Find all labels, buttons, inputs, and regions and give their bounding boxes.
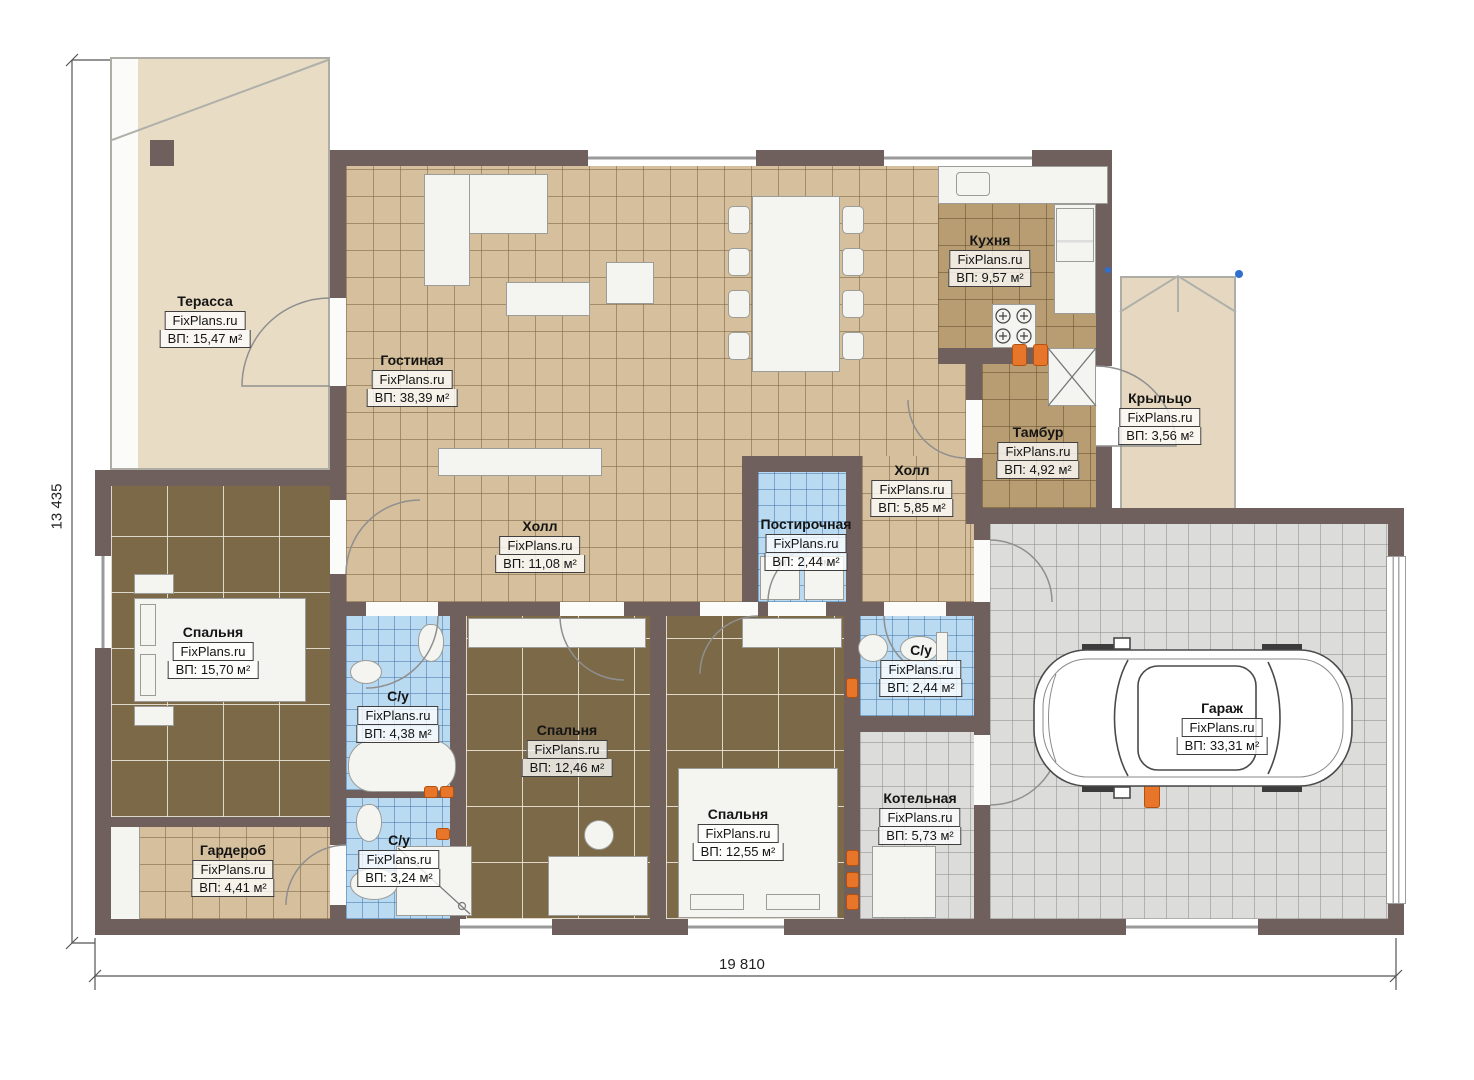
room-label-garage: Гараж FixPlans.ru ВП: 33,31 м² [1177, 700, 1268, 755]
brand-watermark: FixPlans.ru [1119, 408, 1200, 427]
desk-chair [584, 820, 614, 850]
bathroom3-door-gap [884, 602, 946, 616]
room-area: ВП: 33,31 м² [1177, 737, 1268, 755]
wardrobe-closet [111, 827, 140, 919]
radiator [846, 872, 859, 888]
coffee-table [506, 282, 590, 316]
room-area: ВП: 4,41 м² [191, 879, 274, 897]
room-label-bedroom1: Спальня FixPlans.ru ВП: 15,70 м² [168, 624, 259, 679]
dimension-height: 13 435 [48, 480, 65, 534]
room-label-bedroom2: Спальня FixPlans.ru ВП: 12,46 м² [522, 722, 613, 777]
terrace-floor [110, 57, 330, 470]
bed-pillow [140, 604, 156, 646]
window-top-1 [588, 150, 756, 166]
room-label-kitchen: Кухня FixPlans.ru ВП: 9,57 м² [948, 232, 1031, 287]
bedroom3-door-gap [700, 602, 758, 616]
room-label-porch: Крыльцо FixPlans.ru ВП: 3,56 м² [1118, 390, 1201, 445]
room-label-bedroom3: Спальня FixPlans.ru ВП: 12,55 м² [693, 806, 784, 861]
room-name: С/у [356, 688, 439, 704]
room-name: Спальня [693, 806, 784, 822]
terrace-edge [112, 59, 138, 468]
room-label-hall-small: Холл FixPlans.ru ВП: 5,85 м² [870, 462, 953, 517]
room-area: ВП: 11,08 м² [495, 555, 585, 573]
room-label-wardrobe: Гардероб FixPlans.ru ВП: 4,41 м² [191, 842, 274, 897]
radiator [1144, 782, 1160, 808]
room-area: ВП: 3,56 м² [1118, 427, 1201, 445]
room-name: Гараж [1177, 700, 1268, 716]
room-name: Спальня [168, 624, 259, 640]
bathroom1-door-gap [366, 602, 438, 616]
brand-watermark: FixPlans.ru [997, 442, 1078, 461]
room-name: Крыльцо [1118, 390, 1201, 406]
room-label-boiler: Котельная FixPlans.ru ВП: 5,73 м² [878, 790, 961, 845]
room-area: ВП: 38,39 м² [367, 389, 458, 407]
room-name: С/у [357, 832, 440, 848]
wall-bath3-boiler [844, 716, 974, 732]
chair [842, 248, 864, 276]
chair [728, 248, 750, 276]
room-name: Терасса [160, 293, 251, 309]
floor-plan: СМ СМ [0, 0, 1474, 1080]
room-area: ВП: 15,70 м² [168, 661, 259, 679]
brand-watermark: FixPlans.ru [879, 808, 960, 827]
tambur-door-gap [966, 400, 982, 458]
desk [548, 856, 648, 916]
room-area: ВП: 2,44 м² [764, 553, 847, 571]
room-area: ВП: 12,55 м² [693, 843, 784, 861]
window-bottom-2 [688, 919, 784, 935]
dining-table [752, 196, 840, 372]
brand-watermark: FixPlans.ru [880, 660, 961, 679]
room-label-laundry: Постирочная FixPlans.ru ВП: 2,44 м² [761, 516, 852, 571]
wardrobe-unit [468, 618, 646, 648]
roof-post [150, 140, 174, 166]
bedroom2-door-gap [560, 602, 624, 616]
room-area: ВП: 4,38 м² [356, 725, 439, 743]
nightstand [134, 574, 174, 594]
room-label-terrace: Терасса FixPlans.ru ВП: 15,47 м² [160, 293, 251, 348]
kitchen-sink [956, 172, 990, 196]
room-name: Гостиная [367, 352, 458, 368]
radiator [424, 786, 438, 798]
stove [992, 304, 1036, 348]
radiator [440, 786, 454, 798]
sideboard [438, 448, 602, 476]
boiler-door-gap [974, 735, 990, 805]
nightstand [134, 706, 174, 726]
brand-watermark: FixPlans.ru [192, 860, 273, 879]
brand-watermark: FixPlans.ru [164, 311, 245, 330]
room-name: С/у [879, 642, 962, 658]
radiator [1033, 344, 1048, 366]
fridge [1056, 208, 1094, 262]
room-name: Тамбур [996, 424, 1079, 440]
room-area: ВП: 5,73 м² [878, 827, 961, 845]
brand-watermark: FixPlans.ru [358, 850, 439, 869]
brand-watermark: FixPlans.ru [697, 824, 778, 843]
survey-point [1235, 270, 1243, 278]
tv-stand [606, 262, 654, 304]
room-name: Кухня [948, 232, 1031, 248]
room-label-bathroom3: С/у FixPlans.ru ВП: 2,44 м² [879, 642, 962, 697]
bed-pillow [140, 654, 156, 696]
brand-watermark: FixPlans.ru [371, 370, 452, 389]
wall-laundry-left [742, 456, 758, 602]
radiator [846, 678, 858, 698]
brand-watermark: FixPlans.ru [526, 740, 607, 759]
brand-watermark: FixPlans.ru [765, 534, 846, 553]
chair [728, 332, 750, 360]
brand-watermark: FixPlans.ru [1181, 718, 1262, 737]
radiator [846, 894, 859, 910]
room-label-tambur: Тамбур FixPlans.ru ВП: 4,92 м² [996, 424, 1079, 479]
garage-door-gap1 [974, 540, 990, 602]
washbasin [350, 660, 382, 684]
bathtub [348, 740, 456, 792]
room-label-bathroom2: С/у FixPlans.ru ВП: 3,24 м² [357, 832, 440, 887]
sofa-chaise [424, 174, 470, 286]
chair [842, 332, 864, 360]
room-area: ВП: 5,85 м² [870, 499, 953, 517]
wall-bedroom1-top [95, 470, 346, 486]
chair [842, 290, 864, 318]
room-area: ВП: 15,47 м² [160, 330, 251, 348]
dimension-width: 19 810 [715, 956, 769, 973]
window-bottom-3 [1126, 919, 1258, 935]
wardrobe-unit [742, 618, 842, 648]
brand-watermark: FixPlans.ru [357, 706, 438, 725]
wall-left-exterior [95, 470, 111, 935]
wall-kitchen-bottom [938, 348, 1048, 364]
room-area: ВП: 12,46 м² [522, 759, 613, 777]
terrace-door-gap [330, 298, 346, 386]
laundry-door-gap [768, 602, 826, 616]
vent-shaft [1048, 348, 1096, 406]
wardrobe-door-gap [330, 845, 346, 905]
room-area: ВП: 4,92 м² [996, 461, 1079, 479]
room-label-bathroom1: С/у FixPlans.ru ВП: 4,38 м² [356, 688, 439, 743]
room-label-hall-main: Холл FixPlans.ru ВП: 11,08 м² [495, 518, 585, 573]
toilet [418, 624, 444, 662]
brand-watermark: FixPlans.ru [949, 250, 1030, 269]
wall-laundry-top [742, 456, 862, 472]
wall-garage-top [966, 508, 1404, 524]
garage-gate [1386, 556, 1406, 904]
room-area: ВП: 9,57 м² [948, 269, 1031, 287]
room-area: ВП: 3,24 м² [357, 869, 440, 887]
window-top-2 [884, 150, 1032, 166]
radiator [1012, 344, 1027, 366]
window-left [95, 556, 111, 648]
radiator [846, 850, 859, 866]
bedroom1-door-gap [330, 500, 346, 574]
room-area: ВП: 2,44 м² [879, 679, 962, 697]
room-name: Холл [495, 518, 585, 534]
room-label-living: Гостиная FixPlans.ru ВП: 38,39 м² [367, 352, 458, 407]
chair [842, 206, 864, 234]
brand-watermark: FixPlans.ru [499, 536, 580, 555]
boiler-unit [872, 846, 936, 918]
bed-pillow [766, 894, 820, 910]
chair [728, 290, 750, 318]
chair [728, 206, 750, 234]
window-bottom-1 [460, 919, 552, 935]
room-name: Холл [870, 462, 953, 478]
room-name: Гардероб [191, 842, 274, 858]
bed-pillow [690, 894, 744, 910]
wall-bed2-bed3 [650, 616, 666, 919]
room-name: Котельная [878, 790, 961, 806]
room-name: Постирочная [761, 516, 852, 532]
wall-bedroom1-wardrobe [111, 817, 330, 827]
brand-watermark: FixPlans.ru [871, 480, 952, 499]
room-name: Спальня [522, 722, 613, 738]
brand-watermark: FixPlans.ru [172, 642, 253, 661]
